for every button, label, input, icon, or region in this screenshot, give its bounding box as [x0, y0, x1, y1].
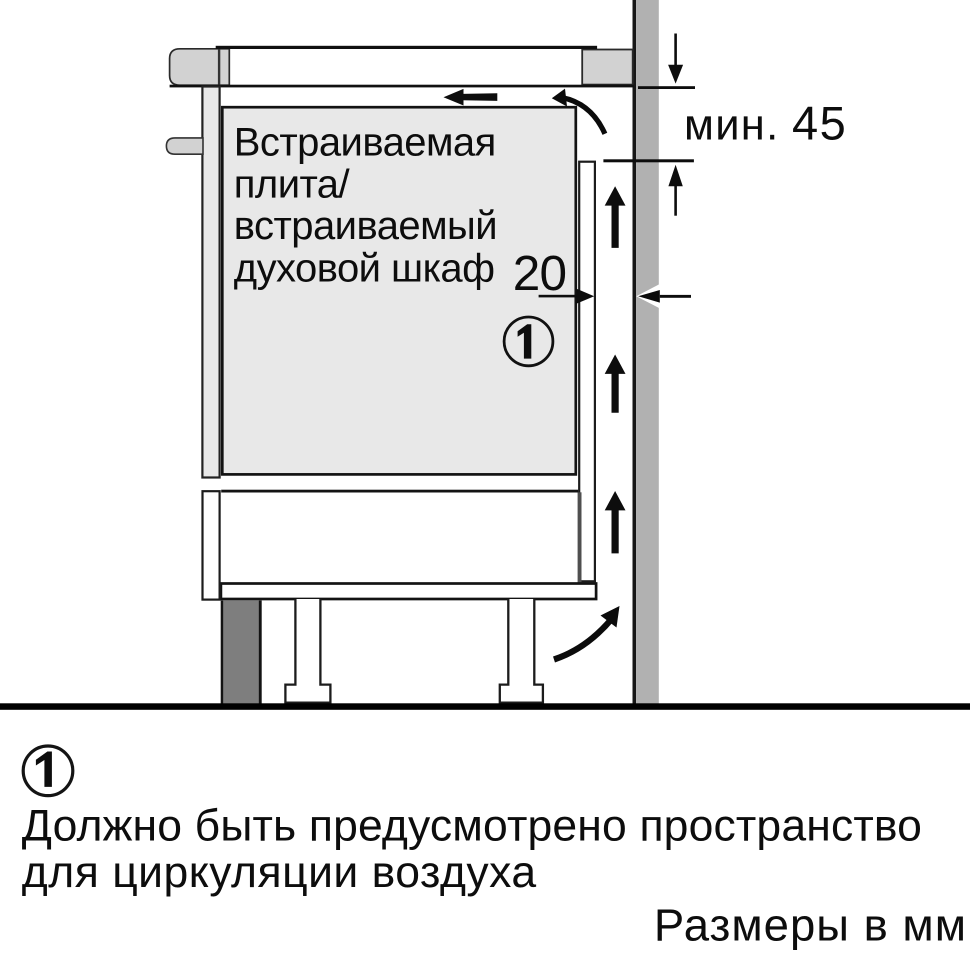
- svg-text:Размеры в мм: Размеры в мм: [654, 899, 967, 950]
- svg-text:Должно быть предусмотрено прос: Должно быть предусмотрено пространство: [22, 801, 922, 850]
- svg-text:духовой шкаф: духовой шкаф: [234, 246, 495, 290]
- svg-text:45: 45: [792, 97, 847, 150]
- svg-text:20: 20: [513, 246, 566, 301]
- svg-text:для циркуляции воздуха: для циркуляции воздуха: [22, 848, 537, 897]
- svg-text:плита/: плита/: [234, 162, 351, 206]
- svg-text:мин.: мин.: [684, 102, 780, 150]
- svg-text:Встраиваемая: Встраиваемая: [234, 121, 496, 165]
- svg-text:встраиваемый: встраиваемый: [234, 204, 497, 248]
